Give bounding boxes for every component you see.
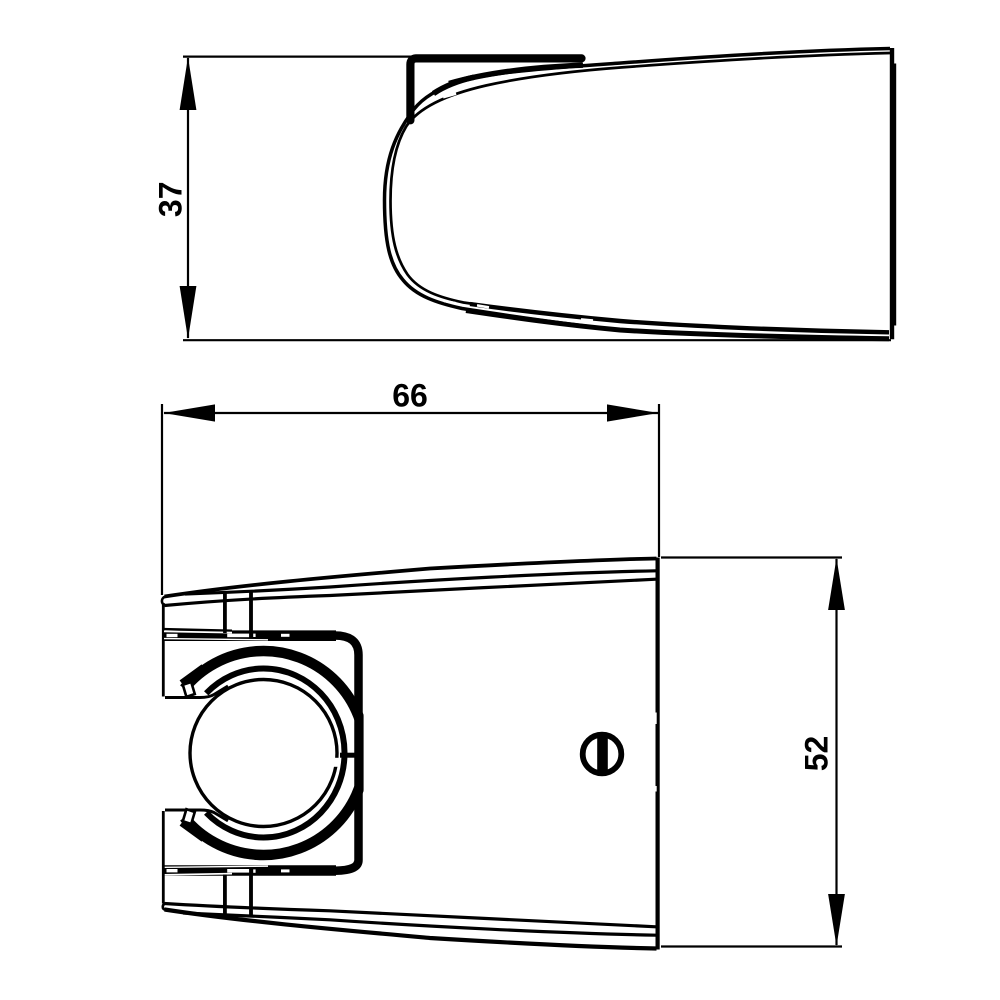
svg-text:52: 52 [799,736,835,772]
svg-text:37: 37 [152,182,188,218]
svg-text:66: 66 [392,378,428,414]
